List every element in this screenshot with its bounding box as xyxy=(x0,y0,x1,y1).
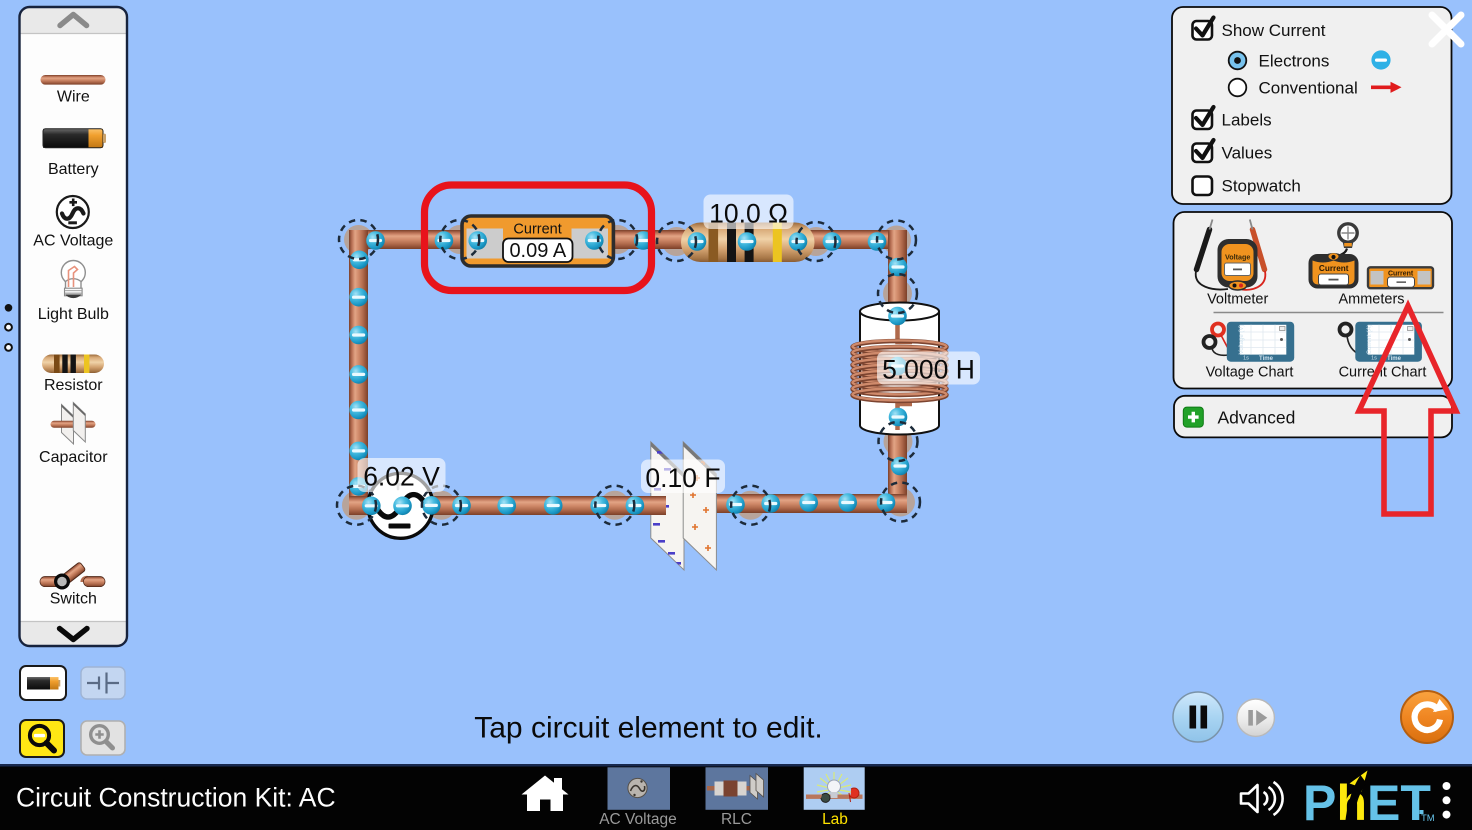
svg-text:Stopwatch: Stopwatch xyxy=(1222,177,1301,196)
svg-text:Time: Time xyxy=(1259,356,1274,362)
svg-text:Light Bulb: Light Bulb xyxy=(38,306,109,323)
svg-text:Values: Values xyxy=(1222,144,1273,163)
svg-text:1s: 1s xyxy=(1371,356,1377,362)
svg-text:Resistor: Resistor xyxy=(44,377,103,394)
svg-text:0.10 F: 0.10 F xyxy=(645,463,720,493)
svg-text:Labels: Labels xyxy=(1222,111,1272,130)
svg-text:Ammeters: Ammeters xyxy=(1338,292,1404,308)
svg-text:Tap circuit element to edit.: Tap circuit element to edit. xyxy=(474,712,823,745)
svg-text:Current: Current xyxy=(513,222,561,238)
svg-text:Wire: Wire xyxy=(57,89,90,106)
svg-text:P: P xyxy=(1303,775,1336,830)
svg-text:Current: Current xyxy=(1319,264,1349,273)
svg-text:Voltmeter: Voltmeter xyxy=(1207,292,1268,308)
svg-text:Time: Time xyxy=(1387,356,1402,362)
svg-text:1s: 1s xyxy=(1243,356,1249,362)
svg-text:Current: Current xyxy=(1388,271,1414,278)
svg-text:AC Voltage: AC Voltage xyxy=(33,233,113,250)
svg-text:Show Current: Show Current xyxy=(1222,21,1326,40)
svg-text:Capacitor: Capacitor xyxy=(39,449,108,466)
svg-text:Voltage Chart: Voltage Chart xyxy=(1206,365,1294,381)
svg-text:Circuit Construction Kit: AC: Circuit Construction Kit: AC xyxy=(16,783,336,813)
svg-text:0.09 A: 0.09 A xyxy=(509,240,566,262)
svg-text:AC Voltage: AC Voltage xyxy=(599,811,677,828)
svg-text:RLC: RLC xyxy=(721,811,752,828)
svg-text:Electrons: Electrons xyxy=(1259,52,1330,71)
svg-text:Current (A): Current (A) xyxy=(1367,325,1373,355)
svg-text:Battery: Battery xyxy=(48,161,99,178)
svg-text:Switch: Switch xyxy=(50,591,97,608)
svg-text:Voltage: Voltage xyxy=(1225,253,1250,262)
svg-text:Voltage (V): Voltage (V) xyxy=(1239,325,1245,355)
svg-text:Advanced: Advanced xyxy=(1218,408,1296,428)
svg-text:10.0 Ω: 10.0 Ω xyxy=(709,199,788,229)
svg-text:Conventional: Conventional xyxy=(1259,79,1358,98)
svg-text:TM: TM xyxy=(1421,813,1435,824)
svg-text:5.000 H: 5.000 H xyxy=(882,355,975,385)
svg-text:Lab: Lab xyxy=(822,811,848,828)
svg-text:6.02 V: 6.02 V xyxy=(363,462,440,492)
